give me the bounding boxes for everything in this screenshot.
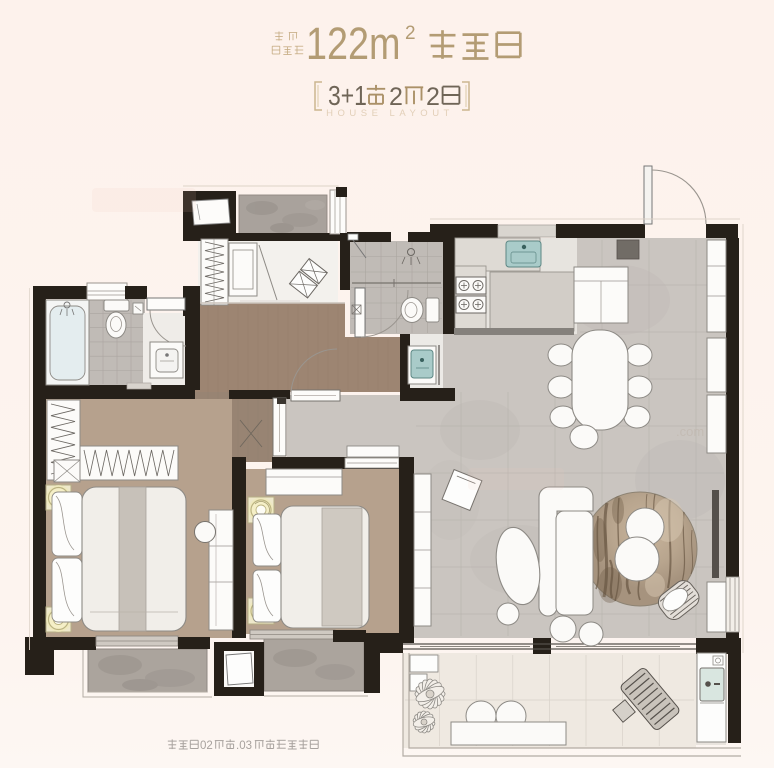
- svg-text:.03: .03: [236, 740, 252, 752]
- svg-text:02: 02: [200, 740, 213, 752]
- svg-text:.com: .com: [676, 424, 704, 439]
- svg-text:2: 2: [389, 83, 403, 111]
- svg-text:HOUSE LAYOUT: HOUSE LAYOUT: [326, 108, 454, 119]
- svg-text:3+1: 3+1: [328, 81, 367, 112]
- svg-text:2: 2: [426, 83, 440, 111]
- svg-text:122m: 122m: [306, 18, 401, 69]
- svg-text:2: 2: [405, 23, 416, 44]
